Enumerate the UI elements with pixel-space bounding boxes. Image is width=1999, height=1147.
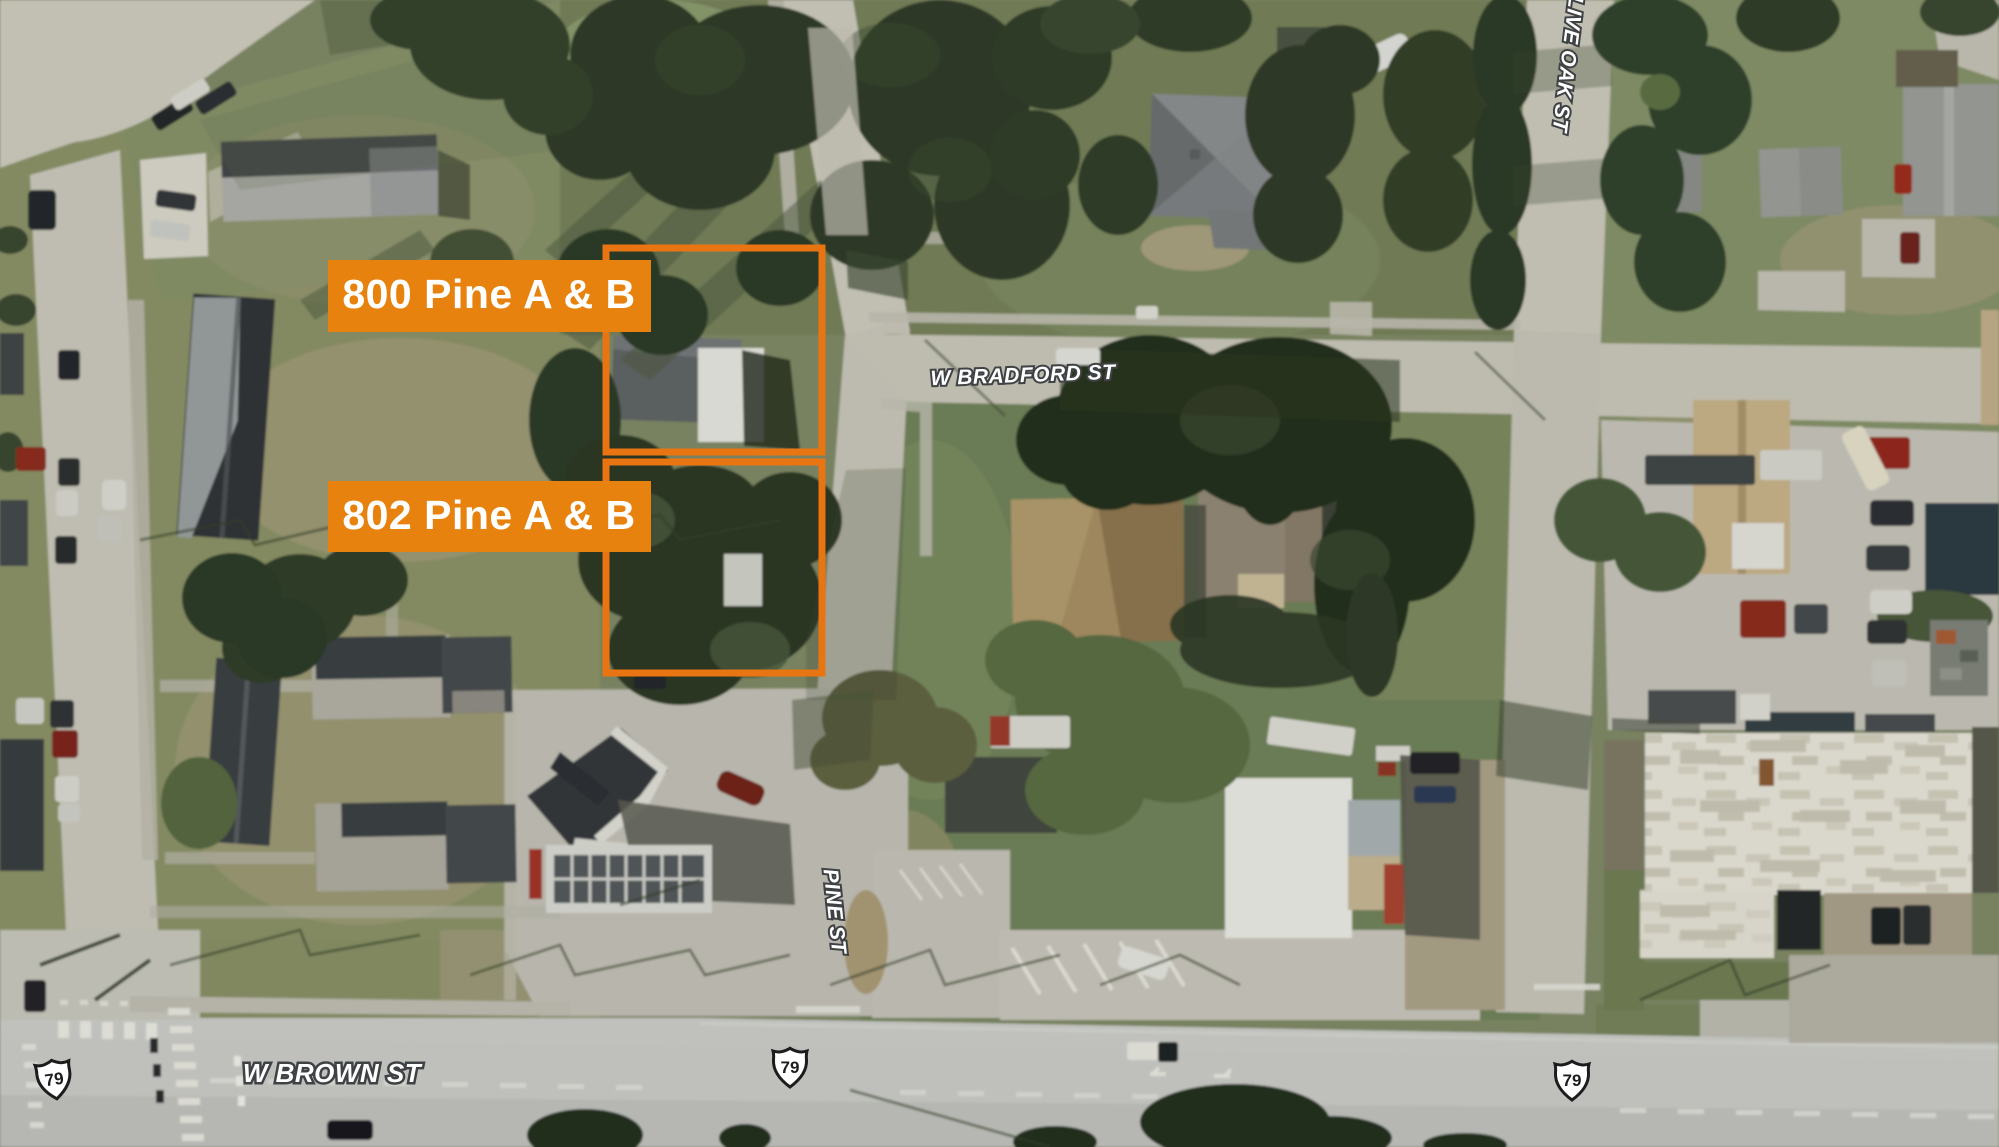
svg-text:800 Pine A & B: 800 Pine A & B	[342, 271, 635, 317]
svg-text:79: 79	[44, 1069, 65, 1090]
svg-text:802 Pine A & B: 802 Pine A & B	[342, 492, 635, 538]
svg-text:79: 79	[1563, 1071, 1582, 1090]
svg-text:79: 79	[781, 1058, 800, 1077]
svg-text:W BROWN ST: W BROWN ST	[243, 1058, 423, 1088]
